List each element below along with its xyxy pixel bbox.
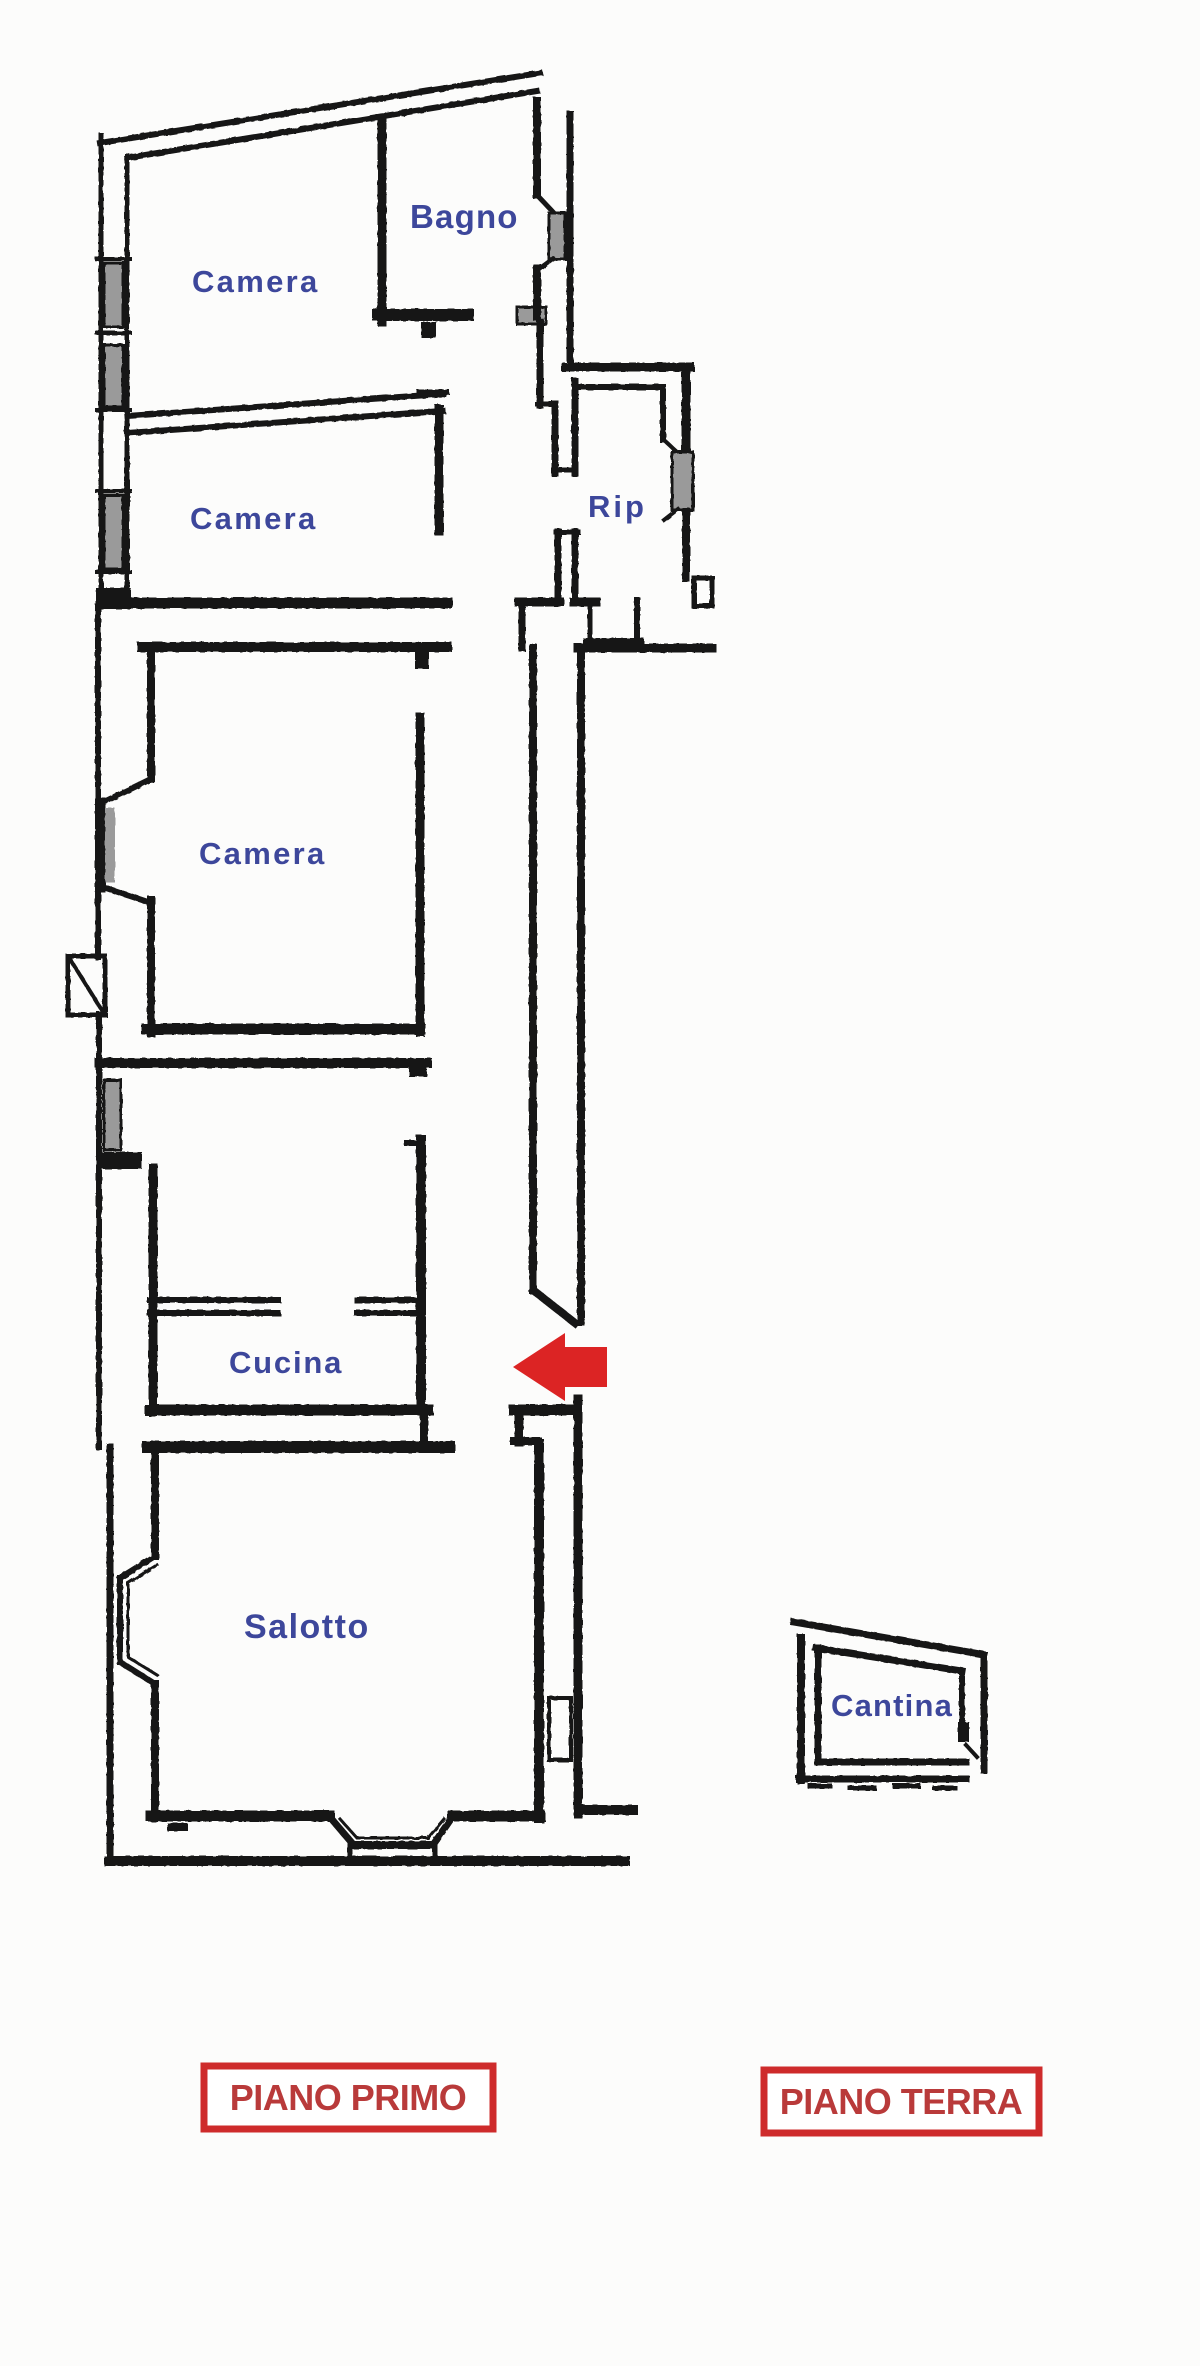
svg-text:Cucina: Cucina [229,1345,343,1380]
svg-text:Camera: Camera [192,264,320,299]
svg-text:Bagno: Bagno [410,198,519,235]
svg-text:PIANO TERRA: PIANO TERRA [780,2081,1023,2122]
svg-text:Cantina: Cantina [831,1688,953,1723]
svg-text:Salotto: Salotto [244,1608,370,1646]
svg-text:Rip: Rip [588,489,647,524]
svg-text:Camera: Camera [199,836,327,871]
svg-text:Camera: Camera [190,501,318,536]
svg-text:PIANO PRIMO: PIANO PRIMO [230,2077,467,2118]
